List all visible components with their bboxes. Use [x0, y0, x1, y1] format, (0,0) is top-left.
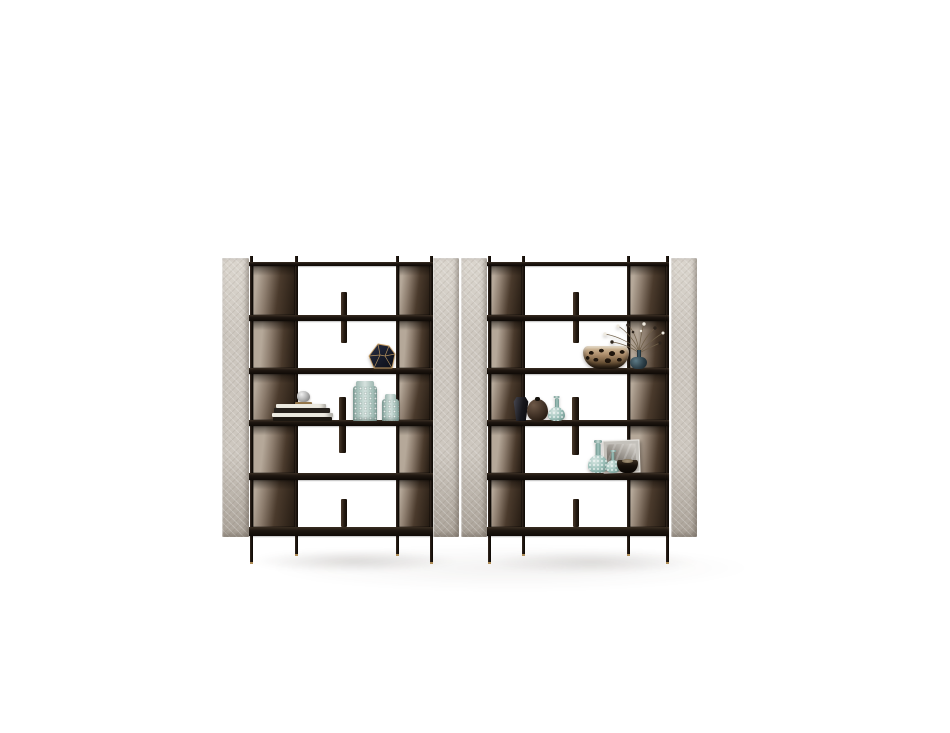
- right-leg-foot: [666, 562, 669, 564]
- left-back-panel: [399, 480, 430, 527]
- left-back-panel: [253, 321, 295, 368]
- left-shelf: [249, 262, 433, 266]
- left-shelf: [249, 473, 433, 480]
- brown-vase: [527, 399, 548, 421]
- left-side-panel: [433, 258, 459, 537]
- teal-genie-tall: [588, 440, 608, 473]
- left-shelf: [249, 527, 433, 536]
- left-back-panel: [253, 480, 295, 527]
- left-leg-foot: [396, 554, 399, 556]
- right-leg-foot: [627, 554, 630, 556]
- right-shelf: [487, 315, 669, 321]
- left-divider-fin: [341, 499, 347, 527]
- left-back-panel: [399, 266, 430, 315]
- left-leg-foot: [430, 562, 433, 564]
- vase-body: [353, 386, 377, 421]
- right-side-panel: [671, 258, 697, 537]
- right-back-panel: [491, 266, 522, 315]
- vase-body: [588, 455, 608, 473]
- right-back-panel: [491, 480, 522, 527]
- teal-vase-short: [382, 394, 399, 421]
- right-back-panel: [491, 321, 522, 368]
- right-divider-fin: [572, 397, 579, 455]
- shelving-units-group: [0, 0, 950, 733]
- left-frame-post: [250, 256, 253, 564]
- left-back-panel: [399, 426, 430, 473]
- right-shelf: [487, 420, 669, 426]
- right-shelf: [487, 473, 669, 480]
- left-shelf: [249, 368, 433, 374]
- right-shelf: [487, 527, 669, 536]
- product-photo-scene: [0, 0, 950, 733]
- vase-body: [382, 399, 399, 421]
- right-side-panel: [461, 258, 487, 537]
- right-frame-post: [666, 256, 669, 564]
- right-divider-fin: [573, 499, 579, 527]
- left-back-panel: [253, 426, 295, 473]
- right-leg-foot: [522, 554, 525, 556]
- left-back-panel: [399, 321, 430, 368]
- right-frame-post: [488, 256, 491, 564]
- left-back-panel: [399, 374, 430, 420]
- left-leg-foot: [295, 554, 298, 556]
- left-back-panel: [253, 266, 295, 315]
- vase-body: [630, 357, 647, 369]
- book: [273, 417, 332, 421]
- faceted-vase: [368, 343, 396, 369]
- leopard-bowl: [583, 346, 629, 369]
- vase-body: [548, 407, 565, 421]
- teal-genie-small: [548, 396, 565, 421]
- right-back-panel: [630, 480, 666, 527]
- left-side-panel: [222, 258, 249, 537]
- flower-vase: [630, 350, 647, 369]
- right-frame-post: [627, 256, 630, 556]
- right-back-panel: [491, 426, 522, 473]
- right-back-panel: [630, 374, 666, 420]
- right-shelf: [487, 262, 669, 266]
- right-leg-foot: [488, 562, 491, 564]
- left-leg-foot: [250, 562, 253, 564]
- right-back-panel: [630, 266, 666, 315]
- left-shelf: [249, 315, 433, 321]
- teal-vase-tall: [353, 381, 377, 421]
- book-stack: [272, 404, 333, 421]
